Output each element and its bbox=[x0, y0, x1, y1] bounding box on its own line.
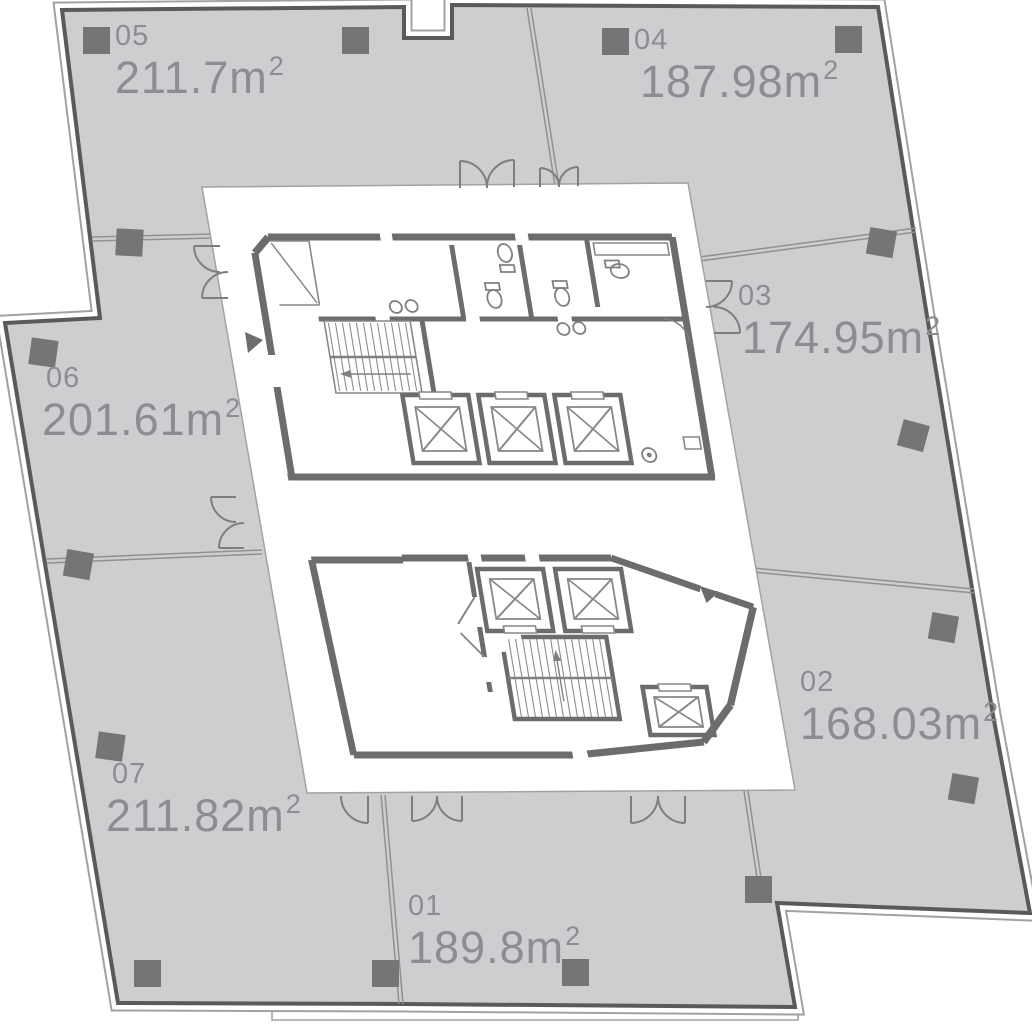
unit-area: 168.03m2 bbox=[800, 699, 999, 746]
area-superscript: 2 bbox=[925, 311, 941, 341]
unit-number: 04 bbox=[634, 26, 839, 55]
column bbox=[948, 773, 979, 804]
floor-plan: 05 211.7m2 04 187.98m2 03 174.95m2 06 20… bbox=[0, 0, 1032, 1024]
unit-04-label[interactable]: 04 187.98m2 bbox=[634, 26, 839, 104]
unit-area: 211.82m2 bbox=[106, 791, 302, 838]
column bbox=[866, 227, 897, 258]
floor-drain-dot bbox=[647, 454, 650, 457]
area-superscript: 2 bbox=[565, 921, 581, 951]
column bbox=[745, 876, 772, 903]
floor-plan-drawing bbox=[0, 0, 1032, 1024]
column bbox=[372, 960, 399, 987]
unit-06-label[interactable]: 06 201.61m2 bbox=[46, 364, 241, 442]
unit-07-label[interactable]: 07 211.82m2 bbox=[112, 760, 302, 838]
column bbox=[134, 960, 161, 987]
unit-area: 187.98m2 bbox=[640, 57, 839, 104]
unit-area: 211.7m2 bbox=[115, 53, 285, 100]
column bbox=[83, 27, 110, 54]
unit-area: 189.8m2 bbox=[408, 923, 581, 970]
unit-02-label[interactable]: 02 168.03m2 bbox=[800, 668, 999, 746]
unit-number: 07 bbox=[112, 760, 302, 789]
unit-number: 06 bbox=[46, 364, 241, 393]
column bbox=[928, 612, 959, 643]
area-superscript: 2 bbox=[225, 393, 241, 423]
unit-number: 01 bbox=[408, 892, 581, 921]
unit-05-label[interactable]: 05 211.7m2 bbox=[115, 22, 285, 100]
unit-number: 02 bbox=[800, 668, 999, 697]
unit-area: 174.95m2 bbox=[742, 313, 941, 360]
area-superscript: 2 bbox=[286, 789, 302, 819]
unit-number: 03 bbox=[738, 282, 941, 311]
area-superscript: 2 bbox=[983, 697, 999, 727]
column bbox=[115, 228, 143, 256]
column bbox=[602, 28, 629, 55]
unit-area: 201.61m2 bbox=[42, 395, 241, 442]
column bbox=[342, 27, 369, 54]
area-superscript: 2 bbox=[269, 51, 285, 81]
unit-number: 05 bbox=[115, 22, 285, 51]
area-superscript: 2 bbox=[823, 55, 839, 85]
column bbox=[63, 549, 94, 580]
unit-03-label[interactable]: 03 174.95m2 bbox=[738, 282, 941, 360]
unit-01-label[interactable]: 01 189.8m2 bbox=[408, 892, 581, 970]
